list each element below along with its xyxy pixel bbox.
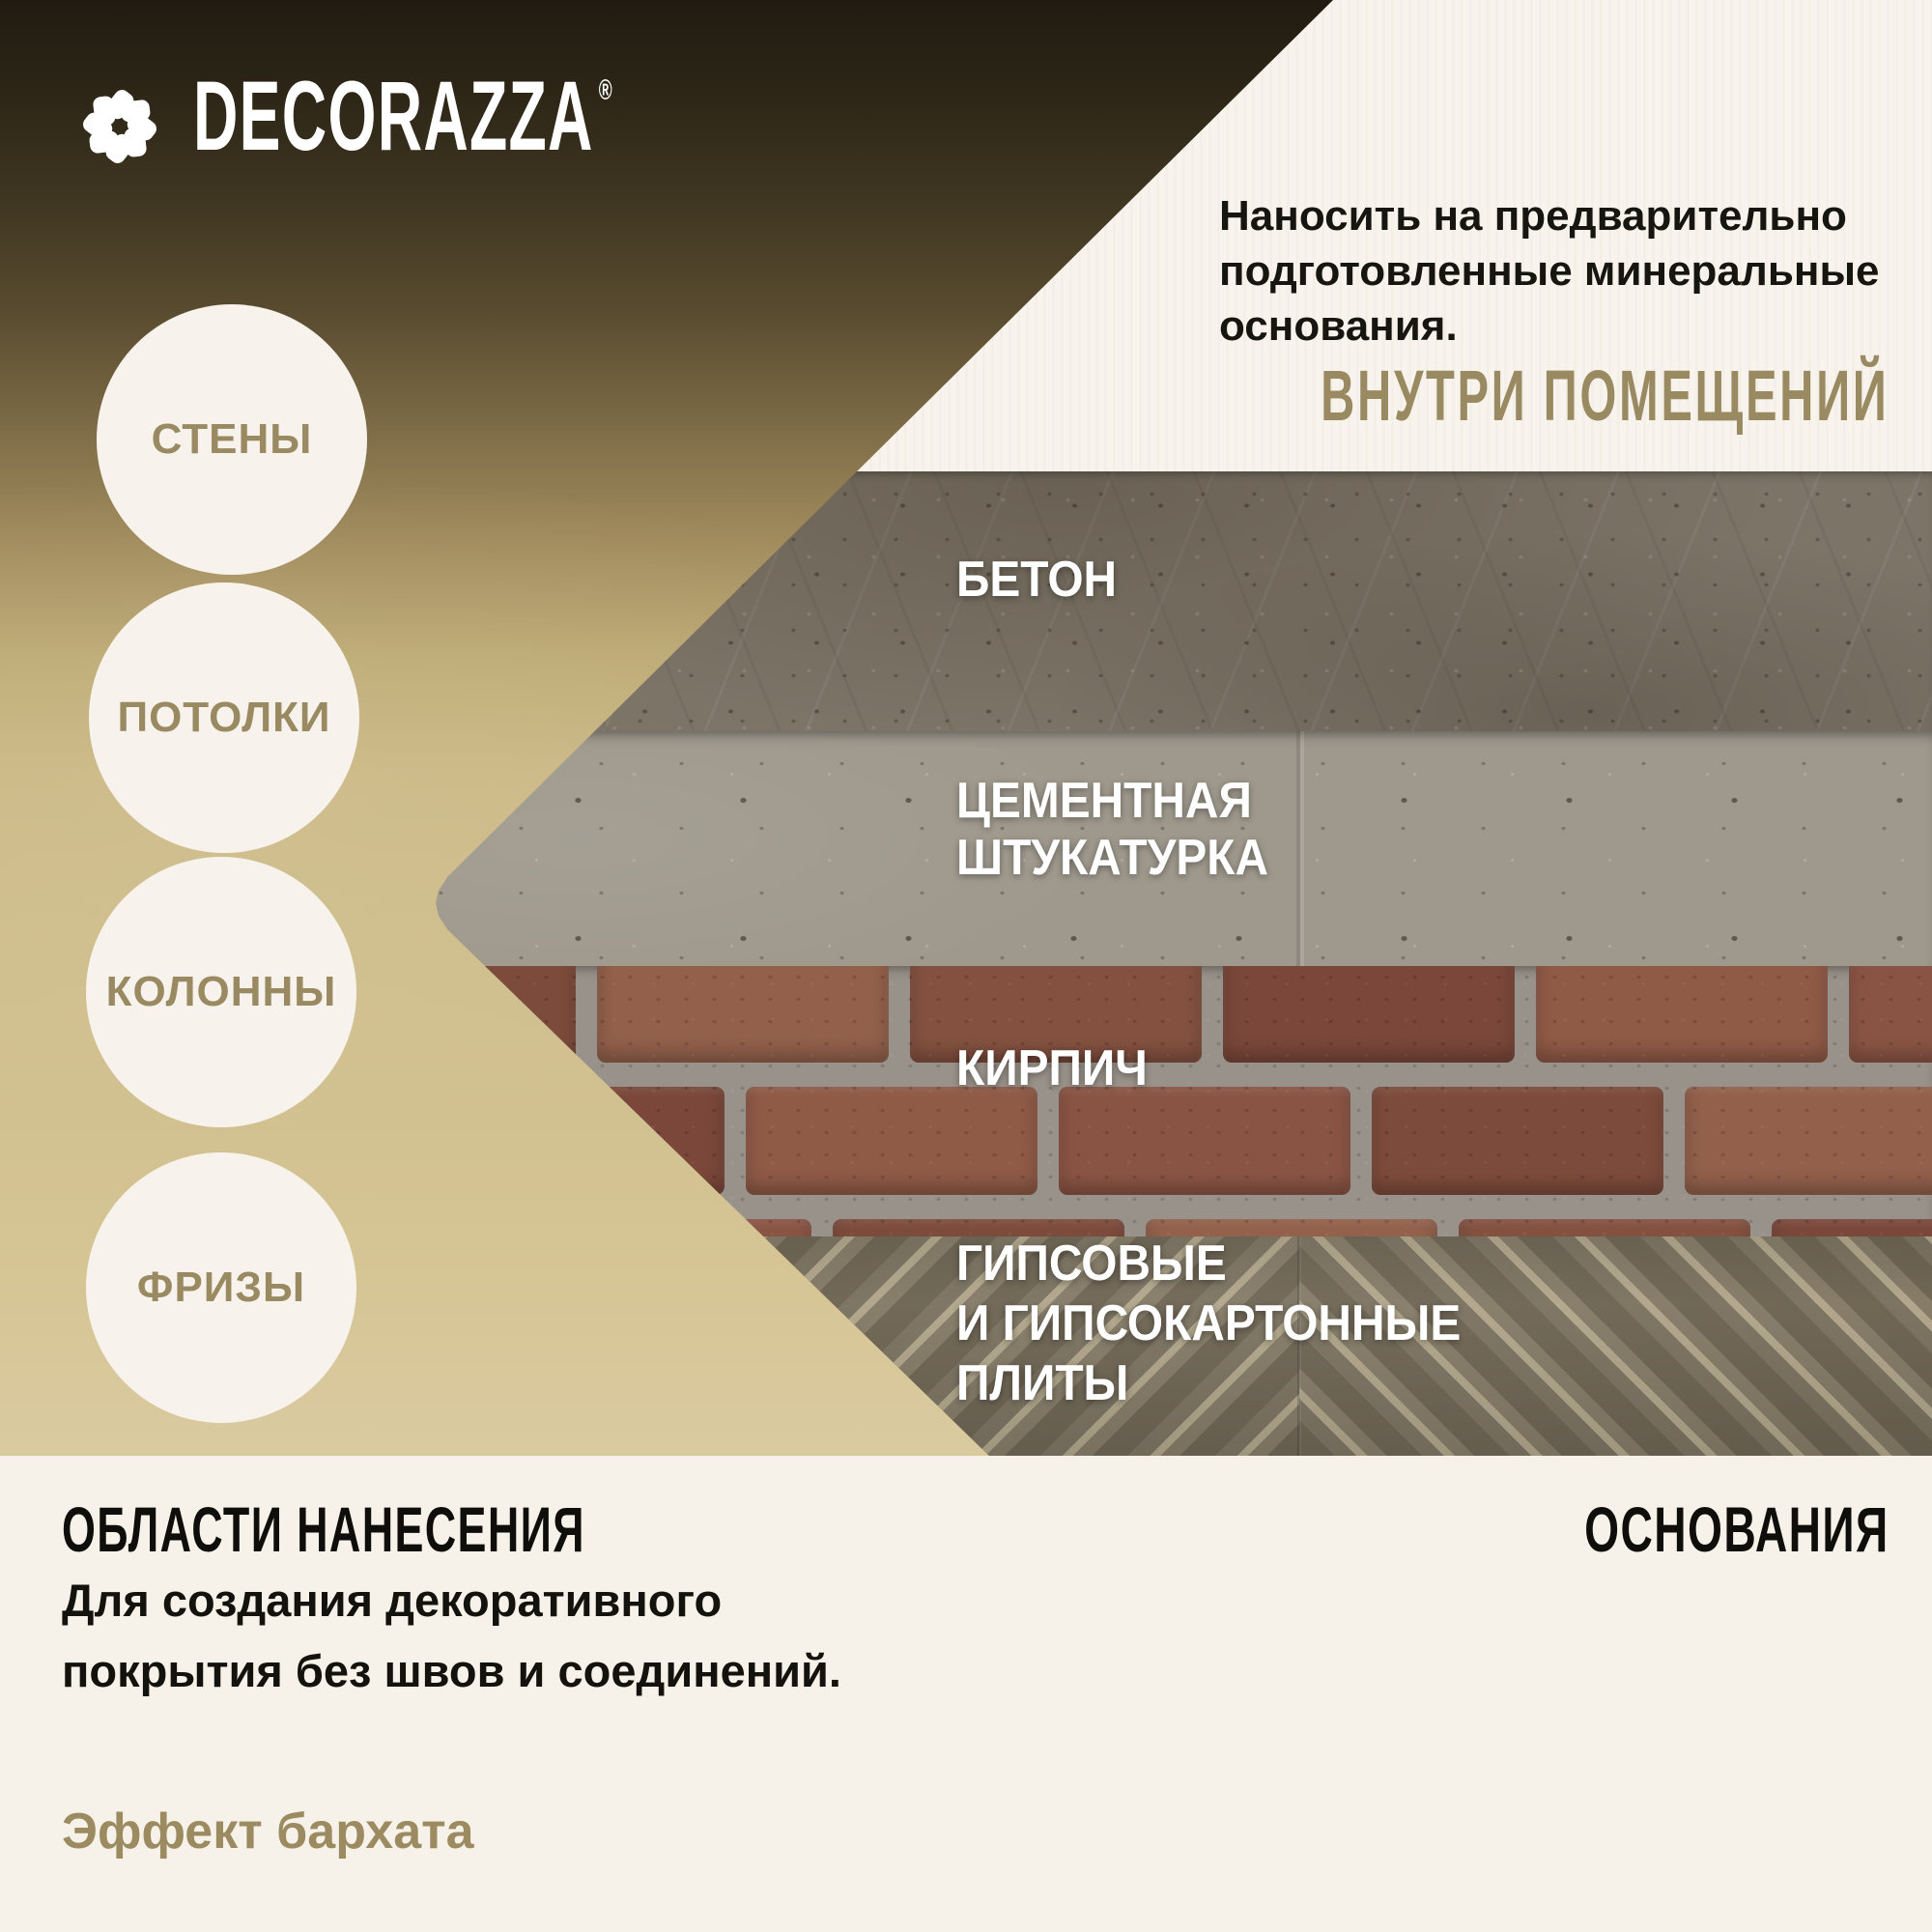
effect-label: Эффект бархата [62, 1803, 474, 1861]
footer-title-substrates: ОСНОВАНИЯ [1585, 1492, 1889, 1566]
footer-description: Для создания декоративного покрытия без … [62, 1565, 841, 1706]
substrate-label-gypsum: ГИПСОВЫЕ И ГИПСОКАРТОННЫЕ ПЛИТЫ [956, 1234, 1461, 1413]
footer-title-application-areas: ОБЛАСТИ НАНЕСЕНИЯ [62, 1492, 585, 1566]
area-label: ФРИЗЫ [137, 1264, 305, 1312]
note-line: подготовленные минеральные [1219, 243, 1880, 298]
area-circle-columns: КОЛОННЫ [86, 857, 356, 1127]
area-label: СТЕНЫ [152, 415, 313, 464]
registered-mark: ® [599, 74, 612, 106]
substrate-label-brick: КИРПИЧ [956, 1039, 1148, 1097]
substrate-label-cement-plaster: ЦЕМЕНТНАЯ ШТУКАТУРКА [956, 773, 1268, 887]
area-circle-ceilings: ПОТОЛКИ [89, 582, 359, 853]
brand-name: DECORAZZA® [193, 73, 612, 184]
substrate-label-concrete: БЕТОН [956, 551, 1117, 609]
decorazza-flower-icon [77, 84, 162, 174]
area-circle-walls: СТЕНЫ [97, 304, 367, 575]
note-line: Наносить на предварительно [1219, 188, 1880, 243]
area-circle-friezes: ФРИЗЫ [86, 1152, 356, 1423]
area-label: КОЛОННЫ [106, 968, 337, 1016]
interior-use-label: ВНУТРИ ПОМЕЩЕНИЙ [1321, 355, 1889, 437]
application-note: Наносить на предварительно подготовленны… [1219, 188, 1880, 354]
note-line: основания. [1219, 298, 1880, 354]
area-label: ПОТОЛКИ [117, 694, 330, 742]
brand-logo: DECORAZZA® [77, 73, 858, 184]
